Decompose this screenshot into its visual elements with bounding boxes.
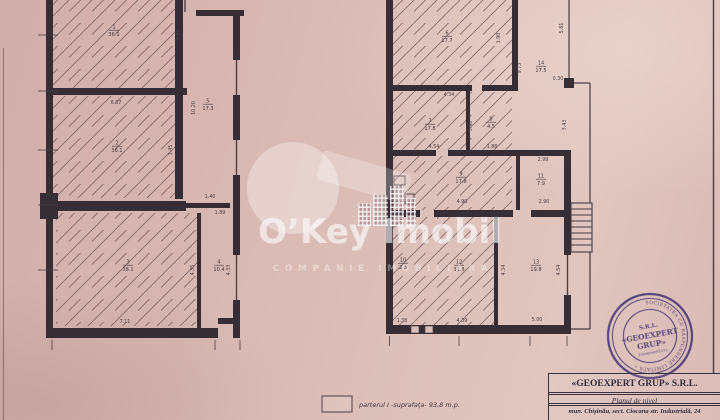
room-number: 6	[445, 31, 448, 37]
right-building-plan: 6 17.7 7 17.8 8 4.5 9 17.8 10 2.3 11 7.9…	[386, 0, 592, 346]
room-number: 5	[206, 99, 209, 105]
room-area: 17.3	[202, 106, 213, 112]
room-area: 38.1	[122, 267, 133, 273]
title-block-doc-title: Planul de nivel	[549, 395, 720, 406]
dimension: 4.90	[457, 199, 468, 205]
dimension: 7.11	[120, 319, 131, 325]
room-number: 3	[126, 260, 129, 266]
staircase-symbol	[571, 203, 592, 252]
dimension-ticks	[390, 336, 568, 346]
dimension: 1.90	[496, 33, 502, 44]
room-number: 10	[400, 258, 406, 264]
dimension: 1.88	[487, 144, 498, 150]
dimension: 1.89	[215, 210, 226, 216]
room-area: 17.7	[441, 38, 452, 44]
dimension: 9.73	[517, 63, 523, 74]
room-number: 12	[456, 260, 462, 266]
room-number: 1	[112, 25, 115, 31]
hatch-room-12	[393, 217, 494, 325]
dimension: 4.54	[556, 265, 562, 276]
room-area: 10.4	[213, 267, 224, 273]
hatch-room-1	[53, 0, 175, 88]
room-number: 13	[533, 260, 539, 266]
room-area: 17.8	[424, 126, 435, 132]
legend-note: parterul I -suprafața- 93,8 m.p.	[358, 401, 460, 409]
dimension: 4.54	[429, 144, 440, 150]
room-number: 4	[217, 260, 220, 266]
dimension: 5.81	[559, 23, 565, 34]
room-area: 17.8	[455, 179, 466, 185]
scanned-floor-plan-page: 1 36.1 2 36.1 3 38.1 4 10.4 5 17.3 6.37 …	[0, 0, 720, 420]
hatch-room-2	[53, 96, 175, 198]
room-area: 4.5	[487, 124, 495, 130]
left-building-plan: 1 36.1 2 36.1 3 38.1 4 10.4 5 17.3 6.37 …	[38, 0, 244, 350]
dimension: 4.39	[457, 318, 468, 324]
dimension: 1.40	[205, 194, 216, 200]
room-area: 7.9	[537, 181, 545, 187]
legend-swatch	[322, 396, 352, 412]
room-area: 31.8	[453, 267, 464, 273]
title-block: «GEOEXPERT GRUP» S.R.L. Planul de nivel …	[548, 373, 720, 420]
room-area: 17.5	[535, 68, 546, 74]
room-number: 8	[489, 117, 492, 123]
dimension: 10.20	[191, 101, 197, 115]
dimension: 1.38	[397, 318, 408, 324]
room-number: 7	[428, 119, 431, 125]
dimension: 3.90	[468, 121, 474, 132]
dimension: 3.43	[562, 120, 568, 131]
room-number: 9	[459, 172, 462, 178]
room-area: 36.1	[111, 148, 122, 154]
legend: parterul I -suprafața- 93,8 m.p.	[322, 396, 460, 412]
room-number: 11	[538, 174, 544, 180]
dimension: 5.00	[532, 317, 543, 323]
hatch-room-9	[393, 156, 512, 210]
room-area: 36.1	[108, 32, 119, 38]
room-area: 2.3	[399, 265, 407, 271]
dimension: 1.45	[168, 145, 174, 156]
room-area: 19.8	[530, 267, 541, 273]
dimension: 6.37	[111, 100, 122, 106]
dimension: 1.65	[176, 30, 182, 41]
title-block-company: «GEOEXPERT GRUP» S.R.L.	[549, 374, 720, 395]
room-number: 14	[538, 61, 544, 67]
dimension: 0.30	[553, 76, 564, 82]
dimension: 2.99	[538, 157, 549, 163]
dimension: 4.34	[444, 92, 455, 98]
dimension: 2.90	[539, 199, 550, 205]
room-number: 2	[115, 141, 118, 147]
dimension: 4.33	[226, 265, 232, 276]
title-block-address: mun. Chișinău, sect. Ciocana str. Indust…	[549, 406, 720, 418]
yard-fence	[569, 0, 590, 329]
dimension: 4.35	[190, 265, 196, 276]
dimension: 4.34	[501, 265, 507, 276]
